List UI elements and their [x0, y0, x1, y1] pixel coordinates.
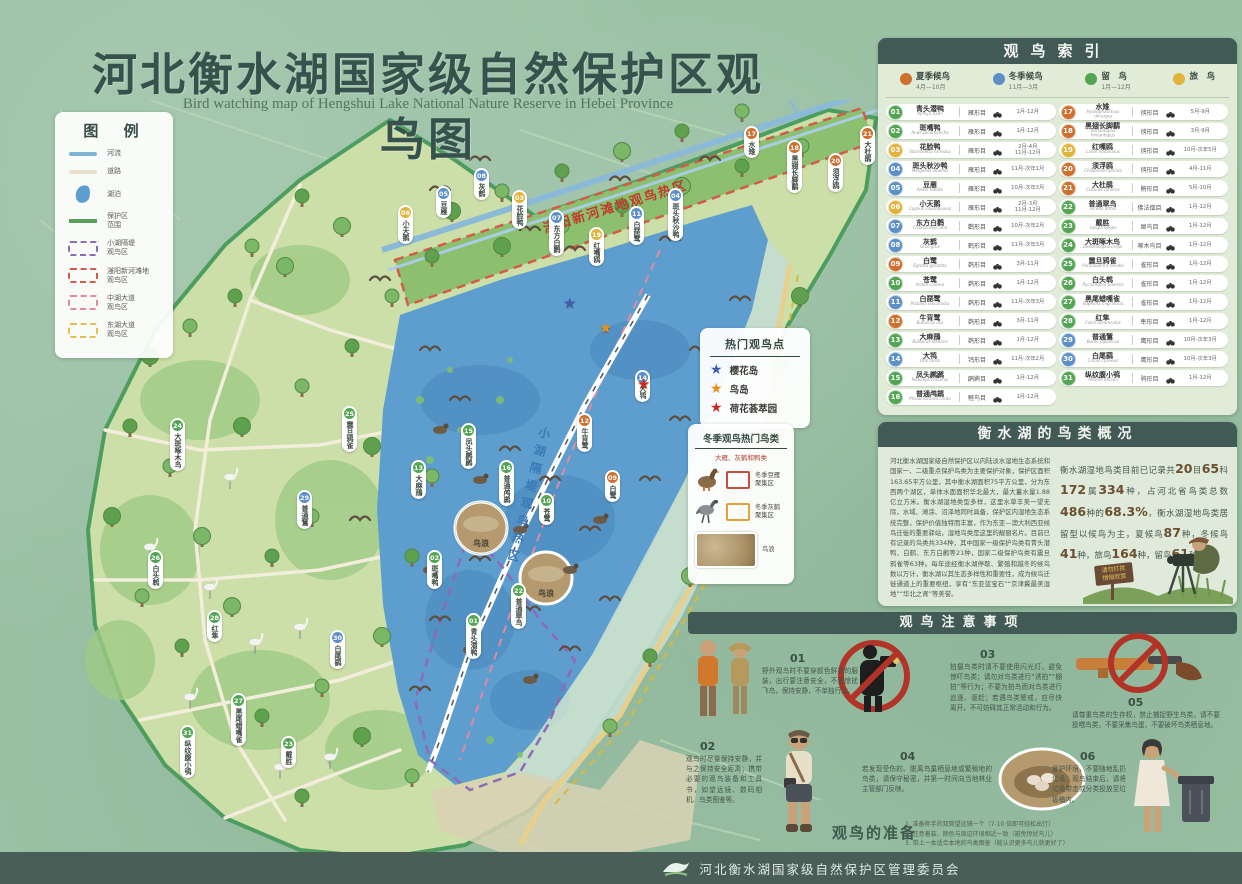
bird-order: 鸻形目 [1135, 146, 1165, 155]
marker-bird-name: 青头潜鸭 [470, 628, 477, 656]
precaution-number: 03 [980, 648, 995, 661]
map-bird-marker: 20须浮鸥 [828, 153, 843, 192]
map-bird-marker: 15凤头䴙䴘 [461, 423, 476, 469]
marker-number: 04 [670, 190, 681, 201]
bird-watching-map-poster: 鸟浪 鸟浪 河北衡水湖国家级自然保护区观鸟图 Bird watching map… [0, 0, 1242, 884]
river-line [69, 152, 97, 156]
bird-order: 鹃形目 [1135, 184, 1165, 193]
marker-bird-name: 白尾鹞 [334, 645, 341, 666]
season-label: 留 鸟 [1101, 72, 1130, 82]
legend-item: 中湖大道 观鸟区 [65, 294, 167, 312]
map-bird-marker: 28红隼 [207, 610, 222, 642]
marker-bird-name: 红隼 [211, 625, 218, 639]
bird-index-title: 观鸟索引 [878, 38, 1237, 64]
yellow-dashed-box [68, 323, 98, 338]
bird-name-latin: Grus grus [906, 247, 955, 251]
precaution-text: 野外观鸟时不要穿颜色鲜艳的服装，出行要注意安全，不要惊扰飞鸟，保持安静，不单独行… [762, 666, 858, 697]
stat-number: 68.3% [1104, 504, 1147, 519]
legend-item: 河流 [65, 149, 167, 158]
photographer-illustration: 请勿打扰 悄悄欣赏 [1083, 518, 1233, 604]
precaution-number: 06 [1080, 750, 1095, 763]
bird-months: 1月-12月 [1176, 318, 1226, 324]
river-line [65, 152, 101, 156]
marker-number: 07 [551, 212, 562, 223]
precaution-text: 若发现受伤的、脱离鸟巢栖息地或繁殖地的鸟类，请保守秘密，并第一时间向当地林业主管… [862, 764, 992, 795]
season-dot [1085, 73, 1097, 85]
purple-dashed-box [65, 241, 101, 256]
bird-index-entry: 03花脸鸭Sibirionetta formosa雁形目2月-4月 11月-12… [886, 142, 1056, 158]
bird-names: 红嘴鸥Larus ridibundus [1076, 144, 1130, 156]
bird-names: 普通翠鸟Alcedo atthis [1076, 201, 1130, 213]
marker-number: 29 [299, 492, 310, 503]
divider [959, 316, 960, 326]
bird-name-latin: Ciconia boyciana [906, 228, 955, 232]
divider [959, 297, 960, 307]
bird-order: 鹰形目 [1135, 355, 1165, 364]
binoculars-icon [1166, 312, 1175, 331]
marker-number: 17 [746, 128, 757, 139]
bird-number: 27 [1061, 295, 1076, 310]
bird-index-entry: 10苍鹭Ardea cinerea鹈形目1月-12月 [886, 275, 1056, 291]
bird-number: 13 [888, 333, 903, 348]
binoculars-icon [993, 236, 1002, 255]
bird-number: 30 [1061, 352, 1076, 367]
bird-name-latin: Hydrophasianus chirurgus [1078, 112, 1127, 120]
bird-months: 1月-12月 [1003, 109, 1053, 115]
footer-org-name: 河北衡水湖国家级自然保护区管理委员会 [699, 859, 960, 878]
map-bird-marker: 01青头潜鸭 [466, 613, 481, 659]
marker-bird-name: 水雉 [748, 141, 755, 155]
precaution-text: 拍摄鸟类时请不要使用闪光灯，避免惊吓鸟类；请勿对鸟类进行“诱拍”“棚拍”等行为；… [950, 662, 1062, 713]
bird-months: 11月-次年2月 [1003, 356, 1053, 362]
bird-name-latin: Buteo japonicus [1078, 342, 1127, 346]
bird-number: 15 [888, 371, 903, 386]
divider [959, 278, 960, 288]
hotspots-box: 热门观鸟点 ★樱花岛★鸟岛★荷花荟萃园 [700, 328, 810, 428]
precaution-text: 请尊重鸟类的生存权，禁止捕捉野生鸟类，请不要投喂鸟类，不要采集鸟蛋，不要破坏鸟类… [1072, 710, 1220, 730]
bird-order: 雁形目 [962, 184, 992, 193]
season-months: 11月—3月 [1009, 82, 1043, 91]
bird-number: 26 [1061, 276, 1076, 291]
legend-item-label: 东湖大道 观鸟区 [107, 321, 135, 339]
stat-number: 41 [1060, 546, 1077, 561]
hotspot-star-icon: ★ [563, 296, 576, 311]
bird-names: 黑翅长脚鹬Himantopus himantopus [1076, 123, 1130, 139]
bird-names: 白头鹎Pycnonotus sinensis [1076, 277, 1130, 289]
marker-bird-name: 苍鹭 [543, 508, 550, 522]
marker-number: 25 [344, 408, 355, 419]
bird-index-entry: 02斑嘴鸭Anas zonorhyncha雁形目1月-12月 [886, 123, 1056, 139]
marker-bird-name: 白琵鹭 [633, 221, 640, 242]
map-bird-marker: 17水雉 [744, 126, 759, 158]
marker-number: 15 [463, 425, 474, 436]
bird-name-latin: Anser fabalis [906, 190, 955, 194]
winter-row-label: 冬季灰鹤 聚集区 [755, 504, 780, 521]
season-dot [993, 73, 1005, 85]
bird-name-latin: Ardea cinerea [906, 285, 955, 289]
bird-months: 1月-12月 [1176, 204, 1226, 210]
binoculars-icon [993, 217, 1002, 236]
marker-bird-name: 大斑啄木鸟 [174, 433, 181, 468]
bird-name-latin: Falco tinnunculus [1078, 323, 1127, 327]
marker-bird-name: 普通鸬鹚 [503, 475, 510, 503]
no-hunting-gun-icon [1068, 632, 1208, 694]
hikers-icon [688, 636, 760, 732]
stat-text: 衡水湖湿地鸟类目前已记录共 [1060, 466, 1175, 476]
map-bird-marker: 21大杜鹃 [860, 126, 875, 165]
bird-index-entry: 21大杜鹃Cuculus canorus鹃形目5月-10月 [1059, 180, 1229, 196]
bird-name-latin: Pycnonotus sinensis [1078, 285, 1127, 289]
bird-names: 大斑啄木鸟Dendrocopos major [1076, 239, 1130, 251]
divider [1132, 107, 1133, 117]
legend-item: 保护区 范围 [65, 212, 167, 230]
precaution-number: 04 [900, 750, 915, 763]
marker-number: 31 [182, 727, 193, 738]
bird-wave-row: 鸟浪 [695, 532, 787, 568]
bird-number: 28 [1061, 314, 1076, 329]
season-dot [1173, 73, 1185, 85]
bird-index-entry: 05豆雁Anser fabalis雁形目10月-次年3月 [886, 180, 1056, 196]
bird-number: 23 [1061, 219, 1076, 234]
marker-bird-name: 红嘴鸥 [593, 242, 600, 263]
prep-line: 1. 准备称手的双筒望远镜一个（7-10 倍即可轻松出行） [905, 820, 1135, 830]
stat-number: 65 [1202, 461, 1219, 476]
bird-index-entry: 12牛背鹭Bubulcus ibis鹈形目3月-11月 [886, 313, 1056, 329]
bird-names: 大鸨Otis tarda [903, 353, 957, 365]
legend-item-label: 小湖隔堤 观鸟区 [107, 239, 135, 257]
bird-index-entry: 17水雉Hydrophasianus chirurgus鸻形目5月-9月 [1059, 104, 1229, 120]
bird-index-entry: 23戴胜Upupa epops犀鸟目1月-12月 [1059, 218, 1229, 234]
divider [959, 392, 960, 402]
map-bird-marker: 30白尾鹞 [330, 630, 345, 669]
road-line [65, 170, 101, 174]
map-bird-marker: 12牛背鹭 [577, 413, 592, 452]
marker-bird-name: 戴胜 [285, 751, 292, 765]
marker-number: 23 [283, 738, 294, 749]
marker-number: 13 [413, 462, 424, 473]
divider [959, 354, 960, 364]
bird-months: 5月-10月 [1176, 185, 1226, 191]
bird-order: 鲣鸟目 [962, 393, 992, 402]
red-dashed-box [65, 268, 101, 283]
overview-title: 衡水湖的鸟类概况 [878, 422, 1237, 447]
bird-index-entry: 11白琵鹭Platalea leucorodia鹈形目11月-次年3月 [886, 294, 1056, 310]
legend-item-label: 保护区 范围 [107, 212, 128, 230]
map-bird-marker: 07东方白鹳 [549, 210, 564, 256]
bird-names: 东方白鹳Ciconia boyciana [903, 220, 957, 232]
bird-number: 24 [1061, 238, 1076, 253]
prep-lines: 1. 准备称手的双筒望远镜一个（7-10 倍即可轻松出行）2. 注意着装，颜色与… [905, 820, 1135, 849]
legend-item: 小湖隔堤 观鸟区 [65, 239, 167, 257]
bird-months: 10月-次年3月 [1176, 337, 1226, 343]
stat-number: 20 [1175, 461, 1192, 476]
divider [1132, 202, 1133, 212]
bird-order: 雁形目 [962, 165, 992, 174]
map-bird-marker: 16普通鸬鹚 [499, 460, 514, 506]
marker-number: 11 [631, 208, 642, 219]
stat-text: 种，占河北省鸟类总数 [1124, 487, 1228, 497]
bird-number: 29 [1061, 333, 1076, 348]
stat-number: 334 [1098, 482, 1124, 497]
marker-number: 10 [541, 495, 552, 506]
bird-index-entry: 28红隼Falco tinnunculus隼形目1月-12月 [1059, 313, 1229, 329]
season-legend-item: 留 鸟1月—12月 [1085, 72, 1130, 91]
map-bird-marker: 22普通翠鸟 [511, 583, 526, 629]
binoculars-icon [1166, 369, 1175, 388]
marker-bird-name: 黑翅长脚鹬 [791, 155, 798, 190]
binoculars-icon [993, 350, 1002, 369]
bird-order: 鸨形目 [962, 355, 992, 364]
lake-shape [74, 184, 92, 205]
bird-index-entry: 16普通鸬鹚Phalacrocorax carbo鲣鸟目1月-12月 [886, 389, 1056, 405]
bird-number: 25 [1061, 257, 1076, 272]
bird-index-entry: 07东方白鹳Ciconia boyciana鹳形目10月-次年2月 [886, 218, 1056, 234]
bird-wave-photo-inset-2: 鸟浪 [520, 552, 572, 604]
precaution-text: 爱护环境，不要随地乱扔垃圾；观鸟结束后，请将垃圾带走或分类投放至垃圾桶内。 [1052, 764, 1126, 805]
bird-index-entry: 29普通鵟Buteo japonicus鹰形目10月-次年3月 [1059, 332, 1229, 348]
marker-number: 16 [501, 462, 512, 473]
bird-order: 䴙䴘目 [962, 374, 992, 383]
binoculars-icon [1166, 160, 1175, 179]
marker-number: 24 [172, 420, 183, 431]
winter-row: 冬季灰鹤 聚集区 [695, 500, 787, 524]
bird-index-entry: 30白尾鹞Circus cyaneus鹰形目10月-次年3月 [1059, 351, 1229, 367]
marker-bird-name: 东方白鹳 [553, 225, 560, 253]
bird-names: 凤头䴙䴘Podiceps cristatus [903, 372, 957, 384]
bird-name-latin: Aythya baeri [906, 114, 955, 118]
prep-line: 2. 注意着装，颜色与周边环境相近一致（避免惊扰鸟儿） [905, 830, 1135, 840]
bird-number: 31 [1061, 371, 1076, 386]
winter-box-subtitle: 大雁、灰鹤和鸭类 [695, 452, 787, 462]
binoculars-icon [1166, 217, 1175, 236]
marker-bird-name: 牛背鹭 [581, 428, 588, 449]
bird-name-latin: Alcedo atthis [1078, 209, 1127, 213]
woman-with-trash-bin-icon [1124, 736, 1220, 840]
stat-number: 486 [1060, 504, 1086, 519]
pink-dashed-box [65, 295, 101, 310]
bird-name-latin: Podiceps cristatus [906, 380, 955, 384]
bird-number: 04 [888, 162, 903, 177]
bird-months: 1月-12月 [1176, 261, 1226, 267]
precaution-text: 观鸟时尽量保持安静，并与之保持安全距离；携带必要的观鸟装备和工具书，如望远镜、数… [686, 754, 762, 805]
bird-number: 07 [888, 219, 903, 234]
bird-index-entry: 25震旦鸦雀Paradoxornis heudei雀形目1月-12月 [1059, 256, 1229, 272]
divider [1132, 221, 1133, 231]
hotspot-row: ★樱花岛 [710, 363, 800, 377]
yellow-dashed-box [65, 323, 101, 338]
bird-order: 鹈形目 [962, 260, 992, 269]
marker-bird-name: 斑头秋沙鸭 [672, 203, 679, 238]
hotspot-row: ★鸟岛 [710, 382, 800, 396]
bird-months: 1月-12月 [1003, 375, 1053, 381]
marker-number: 21 [862, 128, 873, 139]
bird-order: 雀形目 [1135, 260, 1165, 269]
svg-text:鸟浪: 鸟浪 [538, 588, 554, 598]
bird-wave-label: 鸟浪 [762, 546, 775, 555]
bird-name-latin: Dendrocopos major [1078, 247, 1127, 251]
bird-names: 震旦鸦雀Paradoxornis heudei [1076, 258, 1130, 270]
bird-index-entry: 31纵纹腹小鸮Athene noctua鸮形目1月-12月 [1059, 370, 1229, 386]
bird-name-latin: Bubulcus ibis [906, 323, 955, 327]
bird-names: 白琵鹭Platalea leucorodia [903, 296, 957, 308]
bird-number: 03 [888, 143, 903, 158]
marker-number: 22 [513, 585, 524, 596]
legend-item: 东湖大道 观鸟区 [65, 321, 167, 339]
bird-index-entry: 04斑头秋沙鸭Mergellus albellus雁形目11月-次年1月 [886, 161, 1056, 177]
marker-number: 26 [150, 552, 161, 563]
marker-number: 03 [514, 192, 525, 203]
bird-months: 1月-12月 [1003, 128, 1053, 134]
binoculars-icon [993, 122, 1002, 141]
marker-number: 30 [332, 632, 343, 643]
bird-months: 1月-12月 [1003, 394, 1053, 400]
bird-index-entry: 24大斑啄木鸟Dendrocopos major啄木鸟目1月-12月 [1059, 237, 1229, 253]
bird-number: 22 [1061, 200, 1076, 215]
bird-name-latin: Otis tarda [906, 361, 955, 365]
divider [959, 145, 960, 155]
marker-number: 27 [233, 695, 244, 706]
bird-names: 水雉Hydrophasianus chirurgus [1076, 104, 1130, 120]
divider [959, 126, 960, 136]
map-bird-marker: 10苍鹭 [539, 493, 554, 525]
binoculars-icon [1166, 179, 1175, 198]
bird-name-latin: Athene noctua [1078, 380, 1127, 384]
bird-index-entry: 01青头潜鸭Aythya baeri雁形目1月-12月 [886, 104, 1056, 120]
bird-names: 白尾鹞Circus cyaneus [1076, 353, 1130, 365]
marker-number: 08 [476, 170, 487, 181]
marker-number: 02 [429, 552, 440, 563]
bird-index-entry: 09白鹭Egretta garzetta鹈形目3月-11月 [886, 256, 1056, 272]
marker-bird-name: 豆雁 [440, 201, 447, 215]
marker-bird-name: 白头鹎 [152, 565, 159, 586]
bird-name-latin: Mergellus albellus [906, 171, 955, 175]
bird-names: 斑头秋沙鸭Mergellus albellus [903, 163, 957, 175]
bird-order: 鹳形目 [962, 222, 992, 231]
map-bird-marker: 02斑嘴鸭 [427, 550, 442, 589]
bird-index-entry: 15凤头䴙䴘Podiceps cristatus䴙䴘目1月-12月 [886, 370, 1056, 386]
bird-names: 豆雁Anser fabalis [903, 182, 957, 194]
season-text: 冬季候鸟11月—3月 [1009, 72, 1043, 91]
bird-months: 11月-次年3月 [1003, 242, 1053, 248]
bird-names: 大杜鹃Cuculus canorus [1076, 182, 1130, 194]
divider [1132, 126, 1133, 136]
bird-name-latin: Paradoxornis heudei [1078, 266, 1127, 270]
winter-row: 冬季豆雁 聚集区 [695, 468, 787, 492]
map-bird-marker: 13大麻鳽 [411, 460, 426, 499]
season-legend-item: 冬季候鸟11月—3月 [993, 72, 1043, 91]
goose-icon [695, 468, 721, 492]
bird-number: 11 [888, 295, 903, 310]
bird-name-latin: Larus ridibundus [1078, 152, 1127, 156]
season-label: 旅 鸟 [1189, 72, 1215, 82]
map-bird-marker: 19红嘴鸥 [589, 227, 604, 266]
legend-item-label: 湖泊 [107, 190, 121, 199]
bird-names: 大麻鳽Botaurus stellaris [903, 334, 957, 346]
divider [959, 221, 960, 231]
bird-number: 09 [888, 257, 903, 272]
map-bird-marker: 18黑翅长脚鹬 [787, 140, 802, 193]
bird-names: 纵纹腹小鸮Athene noctua [1076, 372, 1130, 384]
bird-number: 14 [888, 352, 903, 367]
marker-bird-name: 普通鵟 [301, 505, 308, 526]
season-legend-item: 夏季候鸟4月—10月 [900, 72, 950, 91]
bird-months: 1月-12月 [1176, 375, 1226, 381]
marker-bird-name: 黑尾蜡嘴雀 [235, 708, 242, 743]
binoculars-icon [993, 198, 1002, 217]
season-label: 夏季候鸟 [916, 72, 950, 82]
bird-order: 犀鸟目 [1135, 222, 1165, 231]
reserve-boundary-line [65, 219, 101, 223]
season-text: 旅 鸟 [1189, 72, 1215, 82]
stat-number: 172 [1060, 482, 1086, 497]
marker-number: 28 [209, 612, 220, 623]
bird-number: 17 [1061, 105, 1076, 120]
legend-item: 道路 [65, 167, 167, 176]
divider [1132, 259, 1133, 269]
binoculars-icon [993, 312, 1002, 331]
winter-row-label: 冬季豆雁 聚集区 [755, 472, 780, 489]
bird-months: 3月-11月 [1003, 318, 1053, 324]
bird-names: 花脸鸭Sibirionetta formosa [903, 144, 957, 156]
bird-name-latin: Phalacrocorax carbo [906, 399, 955, 403]
marker-bird-name: 大麻鳽 [415, 475, 422, 496]
road-line [69, 170, 97, 174]
divider [1132, 278, 1133, 288]
divider [959, 164, 960, 174]
legend-item-label: 河流 [107, 149, 121, 158]
crane-icon [695, 500, 721, 524]
bird-months: 1月-12月 [1176, 299, 1226, 305]
bird-index-entry: 20须浮鸥Chlidonias hybrida鸻形目4月-11月 [1059, 161, 1229, 177]
binoculars-icon [993, 160, 1002, 179]
bird-index-entry: 18黑翅长脚鹬Himantopus himantopus鸻形目3月-9月 [1059, 123, 1229, 139]
bird-wave-photo [695, 532, 757, 568]
bird-index-entry: 22普通翠鸟Alcedo atthis佛法僧目1月-12月 [1059, 199, 1229, 215]
bird-months: 10月-次年2月 [1003, 223, 1053, 229]
divider [959, 373, 960, 383]
bird-order: 鹈形目 [962, 336, 992, 345]
map-bird-marker: 31纵纹腹小鸮 [180, 725, 195, 778]
bird-order: 雁形目 [962, 203, 992, 212]
marker-number: 12 [579, 415, 590, 426]
binoculars-icon [993, 274, 1002, 293]
bird-number: 05 [888, 181, 903, 196]
map-bird-marker: 08灰鹤 [474, 168, 489, 200]
precautions-title: 观鸟注意事项 [688, 612, 1237, 634]
lake-shape [65, 185, 101, 203]
purple-dashed-box [68, 241, 98, 256]
bird-order: 鸻形目 [1135, 127, 1165, 136]
bird-index-entry: 27黑尾蜡嘴雀Eophona migratoria雀形目1月-12月 [1059, 294, 1229, 310]
bird-index-entry: 26白头鹎Pycnonotus sinensis雀形目1月-12月 [1059, 275, 1229, 291]
bird-months: 10月-次年5月 [1176, 147, 1226, 153]
divider [959, 202, 960, 212]
marker-number: 06 [400, 207, 411, 218]
bird-name-latin: Eophona migratoria [1078, 304, 1127, 308]
season-text: 留 鸟1月—12月 [1101, 72, 1130, 91]
season-text: 夏季候鸟4月—10月 [916, 72, 950, 91]
bird-months: 2月-3月 11月-12月 [1003, 201, 1053, 213]
bird-name-latin: Platalea leucorodia [906, 304, 955, 308]
bird-order: 鹈形目 [962, 298, 992, 307]
bird-name-latin: Sibirionetta formosa [906, 152, 955, 156]
divider [1132, 164, 1133, 174]
map-bird-marker: 09白鹭 [605, 470, 620, 502]
bird-months: 4月-11月 [1176, 166, 1226, 172]
bird-order: 雀形目 [1135, 298, 1165, 307]
hotspot-star-icon: ★ [710, 401, 723, 415]
bird-name-latin: Upupa epops [1078, 228, 1127, 232]
